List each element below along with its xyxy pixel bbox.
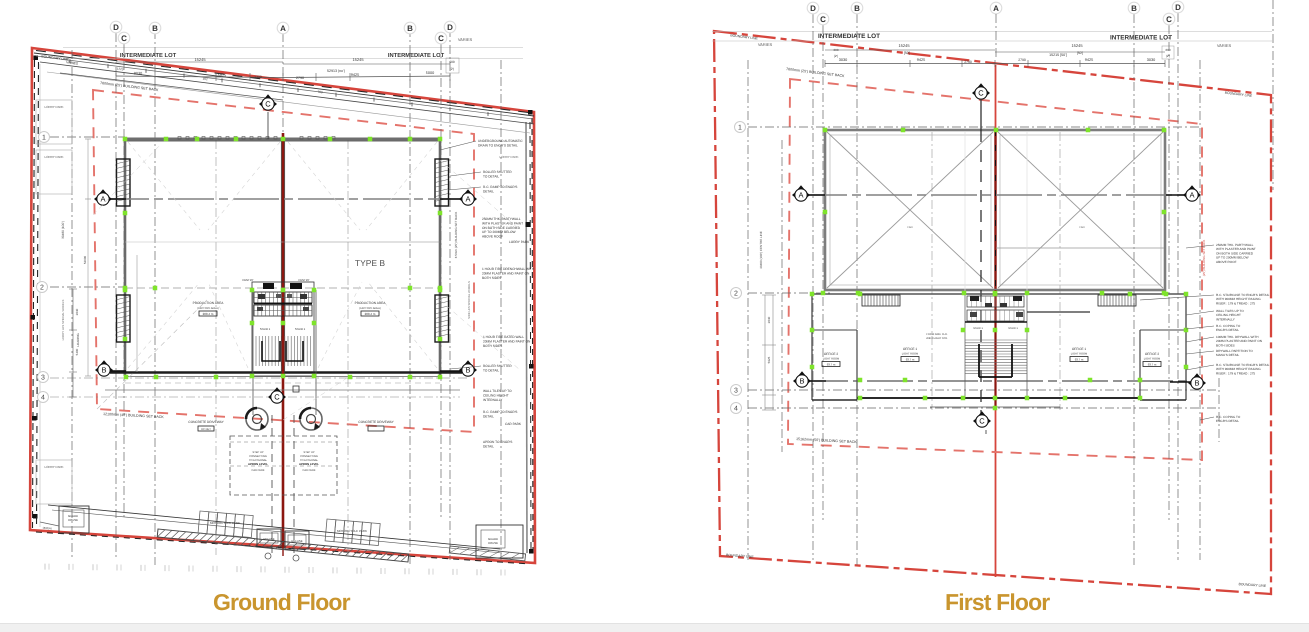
svg-text:20MM PLASTER AND PAINT ON: 20MM PLASTER AND PAINT ON: [483, 339, 531, 343]
svg-text:93.7 m: 93.7 m: [827, 363, 836, 367]
svg-text:INTERMEDIATE LOT: INTERMEDIATE LOT: [1110, 35, 1172, 42]
svg-text:UP TO 200MM BELOW: UP TO 200MM BELOW: [482, 230, 515, 234]
svg-text:LORRY LES SPECIAL WHEELS: LORRY LES SPECIAL WHEELS: [61, 300, 65, 341]
svg-text:93.7 m: 93.7 m: [906, 358, 915, 362]
svg-text:R.C. RAMP TO ENGR'S: R.C. RAMP TO ENGR'S: [483, 410, 517, 414]
svg-text:UNDERGROUND AUTOMATIC: UNDERGROUND AUTOMATIC: [478, 139, 523, 143]
svg-text:TO DETAIL: TO DETAIL: [483, 368, 499, 372]
svg-text:A: A: [1189, 191, 1194, 200]
svg-text:2: 2: [734, 291, 738, 298]
svg-text:5825: 5825: [218, 74, 226, 78]
svg-text:D: D: [113, 23, 119, 32]
svg-text:DETAIL: DETAIL: [483, 414, 494, 418]
svg-text:ROLLER SHUTTER: ROLLER SHUTTER: [483, 364, 512, 368]
svg-text:3: 3: [734, 388, 738, 395]
svg-text:INTERMEDIATE LOT: INTERMEDIATE LOT: [120, 52, 177, 59]
svg-text:9425: 9425: [917, 58, 925, 62]
svg-text:BOTH SIDES: BOTH SIDES: [482, 276, 501, 280]
svg-text:LORRY PARK: LORRY PARK: [44, 105, 63, 109]
svg-text:30480 (100'): 30480 (100'): [61, 221, 65, 239]
svg-text:ENGR'S DETAIL: ENGR'S DETAIL: [1216, 328, 1239, 332]
svg-text:(FACTORY AREA): (FACTORY AREA): [359, 307, 381, 310]
svg-text:B: B: [152, 24, 158, 33]
svg-text:52913 (ne'): 52913 (ne'): [327, 69, 345, 73]
svg-text:93.7 m: 93.7 m: [1148, 363, 1157, 367]
svg-text:600: 600: [1165, 48, 1170, 52]
svg-text:LIGHT ROOM: LIGHT ROOM: [902, 353, 918, 356]
svg-text:A: A: [280, 24, 286, 33]
svg-text:(25') BUILDING SET BACK: (25') BUILDING SET BACK: [1202, 240, 1206, 277]
svg-text:A: A: [993, 4, 999, 13]
svg-text:RISER : 178 & TREAD : 275: RISER : 178 & TREAD : 275: [1216, 301, 1255, 305]
svg-text:93.7 m: 93.7 m: [1075, 358, 1084, 362]
svg-text:1 HOUR FIRE DRENCHWALL WITH: 1 HOUR FIRE DRENCHWALL WITH: [482, 267, 535, 271]
svg-text:PANTRY: PANTRY: [242, 278, 253, 282]
svg-text:A: A: [465, 195, 470, 204]
svg-text:RC DET: RC DET: [201, 428, 211, 431]
svg-text:2790: 2790: [296, 76, 304, 80]
svg-text:LOADING: LOADING: [76, 333, 80, 347]
svg-text:(FACTORY AREA): (FACTORY AREA): [197, 307, 219, 310]
svg-text:TO DETAIL: TO DETAIL: [483, 174, 499, 178]
svg-text:9425: 9425: [351, 73, 359, 77]
svg-text:1223: 1223: [117, 67, 124, 72]
svg-text:BOTH SIDES: BOTH SIDES: [483, 344, 502, 348]
svg-text:9030: 9030: [134, 72, 142, 76]
svg-text:HOUSE: HOUSE: [68, 518, 78, 522]
svg-text:MANU'S DETAIL: MANU'S DETAIL: [1216, 353, 1240, 357]
svg-text:REFUSE: REFUSE: [291, 539, 302, 543]
svg-text:200.4 m: 200.4 m: [203, 312, 214, 316]
svg-text:15245: 15245: [898, 43, 910, 48]
svg-text:BOUNDARY LINE: BOUNDARY LINE: [1238, 582, 1267, 588]
svg-text:C: C: [265, 100, 271, 109]
svg-text:CONNECTING: CONNECTING: [300, 455, 317, 458]
svg-text:12100mm (40') BUILDING SET BAC: 12100mm (40') BUILDING SET BACK: [103, 412, 164, 419]
svg-text:4: 4: [41, 395, 45, 402]
svg-text:STAIR 1: STAIR 1: [1008, 327, 1018, 330]
svg-text:STAIR 1: STAIR 1: [260, 327, 271, 331]
svg-text:(2'): (2'): [450, 67, 455, 71]
svg-text:APRON LEVEL: APRON LEVEL: [299, 462, 319, 466]
svg-text:15245: 15245: [1071, 43, 1083, 48]
svg-text:2840: 2840: [767, 316, 771, 323]
svg-text:STAIR 1: STAIR 1: [295, 327, 306, 331]
svg-text:HOUSE: HOUSE: [488, 541, 498, 545]
svg-text:A: A: [100, 195, 105, 204]
svg-text:INTERNALLY: INTERNALLY: [1216, 317, 1235, 321]
svg-text:2: 2: [40, 285, 44, 292]
svg-text:B: B: [1131, 4, 1137, 13]
svg-text:FAN: FAN: [907, 226, 912, 229]
svg-text:CONNECTING: CONNECTING: [249, 455, 266, 458]
svg-text:RISER : 178 & TREAD : 275: RISER : 178 & TREAD : 275: [1216, 371, 1255, 375]
svg-text:ENGR'S DETAIL: ENGR'S DETAIL: [1216, 419, 1239, 423]
svg-text:2790: 2790: [1018, 58, 1026, 62]
svg-text:VARIES: VARIES: [758, 42, 773, 47]
svg-text:B: B: [1194, 379, 1199, 388]
svg-text:C: C: [1166, 15, 1172, 24]
svg-text:2ND FLIGHT STR.: 2ND FLIGHT STR.: [926, 337, 948, 340]
svg-text:FROM GRD. FLR.: FROM GRD. FLR.: [926, 333, 947, 336]
svg-text:STEP UP: STEP UP: [252, 451, 263, 454]
svg-text:(2'): (2'): [1166, 54, 1170, 58]
svg-text:OFFICE 2: OFFICE 2: [824, 352, 839, 356]
svg-text:DRAIN TO ENGR'S DETAIL: DRAIN TO ENGR'S DETAIL: [478, 143, 518, 147]
svg-text:C: C: [121, 34, 127, 43]
svg-text:LORRY PARK: LORRY PARK: [44, 465, 63, 469]
svg-text:C: C: [438, 34, 444, 43]
svg-text:C: C: [820, 15, 826, 24]
svg-text:PRODUCTION AREA: PRODUCTION AREA: [355, 301, 387, 305]
svg-text:1 HOUR FIRE RATED WALL: 1 HOUR FIRE RATED WALL: [483, 335, 524, 339]
svg-text:WITH PLASTER AND PAINT: WITH PLASTER AND PAINT: [482, 221, 523, 225]
svg-text:VARIES: VARIES: [458, 37, 473, 42]
svg-text:15245: 15245: [352, 57, 364, 62]
svg-text:B: B: [799, 377, 804, 386]
svg-text:1: 1: [42, 135, 46, 142]
svg-text:APRON TO ENGR'S: APRON TO ENGR'S: [483, 440, 512, 444]
svg-text:INTERMEDIATE LOT: INTERMEDIATE LOT: [388, 52, 445, 59]
svg-text:4: 4: [734, 406, 738, 413]
svg-text:A: A: [798, 191, 803, 200]
svg-text:STEP UP: STEP UP: [303, 451, 314, 454]
svg-text:5400: 5400: [75, 348, 79, 355]
svg-text:2790: 2790: [964, 60, 972, 64]
svg-text:ROLLER SHUTTER: ROLLER SHUTTER: [483, 170, 512, 174]
svg-text:20MM PLASTER AND PAINT ON: 20MM PLASTER AND PAINT ON: [482, 271, 530, 275]
svg-text:CONCRETE DRIVEWAY: CONCRETE DRIVEWAY: [358, 420, 394, 424]
svg-text:TYPE B: TYPE B: [355, 258, 386, 268]
svg-text:DETAIL: DETAIL: [483, 444, 494, 448]
svg-text:5925: 5925: [767, 356, 771, 363]
svg-text:15245: 15245: [194, 57, 206, 62]
svg-text:CONCRETE DRIVEWAY: CONCRETE DRIVEWAY: [188, 420, 224, 424]
svg-text:3: 3: [41, 375, 45, 382]
svg-text:[50']: [50']: [1077, 51, 1083, 55]
svg-text:ABOVE ROOF: ABOVE ROOF: [1216, 260, 1237, 264]
svg-text:C: C: [979, 417, 985, 426]
svg-text:VARIES: VARIES: [1217, 43, 1232, 48]
svg-text:MOTORCYCLE PARK: MOTORCYCLE PARK: [337, 529, 367, 533]
svg-text:WALL TILES UP TO: WALL TILES UP TO: [483, 389, 512, 393]
svg-text:BOUNDARY LINE: BOUNDARY LINE: [730, 33, 759, 40]
svg-text:7600mm (25') BUILDING SET BACK: 7600mm (25') BUILDING SET BACK: [786, 67, 845, 78]
svg-text:15215 [50']: 15215 [50']: [1049, 53, 1067, 57]
svg-text:OFFICE 2: OFFICE 2: [1145, 352, 1160, 356]
svg-text:C: C: [978, 89, 984, 98]
svg-text:LIGHT ROOM: LIGHT ROOM: [823, 358, 839, 361]
svg-text:C: C: [274, 393, 280, 402]
svg-text:INTERMEDIATE LOT: INTERMEDIATE LOT: [818, 33, 880, 40]
svg-text:5000: 5000: [426, 71, 434, 75]
svg-text:PANTRY: PANTRY: [298, 278, 309, 282]
svg-text:VARIES: VARIES: [66, 60, 79, 66]
svg-text:STAIR 1: STAIR 1: [973, 327, 983, 330]
svg-text:200.4 m: 200.4 m: [365, 312, 376, 316]
svg-text:53000: 53000: [83, 255, 87, 264]
svg-text:[50']: [50']: [904, 51, 910, 55]
svg-text:30480 (100') CENTRE LINE: 30480 (100') CENTRE LINE: [759, 231, 763, 268]
svg-text:D: D: [810, 4, 816, 13]
svg-text:FAN: FAN: [1079, 226, 1084, 229]
svg-text:[2']: [2']: [834, 54, 838, 58]
svg-text:LIGHT ROOM: LIGHT ROOM: [1144, 358, 1160, 361]
svg-text:760: 760: [317, 90, 323, 95]
svg-text:CAR PARK: CAR PARK: [302, 469, 315, 472]
svg-text:SIDE LES SPECIAL WHEELS: SIDE LES SPECIAL WHEELS: [467, 281, 471, 319]
svg-text:ON BOTH SIDE CARRIED: ON BOTH SIDE CARRIED: [482, 226, 521, 230]
svg-text:1390: 1390: [254, 75, 262, 79]
svg-text:2840: 2840: [75, 308, 79, 315]
svg-text:R.C. RAMP TO ENGR'S: R.C. RAMP TO ENGR'S: [483, 185, 517, 189]
svg-text:REFUSE: REFUSE: [263, 537, 274, 541]
svg-text:3030: 3030: [1147, 58, 1155, 62]
svg-text:INTERNALLY: INTERNALLY: [483, 398, 503, 402]
svg-text:152: 152: [202, 77, 208, 82]
svg-text:CAR PARK: CAR PARK: [251, 469, 264, 472]
svg-text:OFFICE 1: OFFICE 1: [903, 347, 918, 351]
svg-text:D: D: [447, 23, 453, 32]
svg-text:LORRY PARK: LORRY PARK: [509, 240, 530, 244]
svg-text:B: B: [854, 4, 860, 13]
svg-text:DETAIL: DETAIL: [483, 189, 494, 193]
svg-text:B: B: [101, 366, 106, 375]
svg-text:PRODUCTION AREA: PRODUCTION AREA: [193, 301, 225, 305]
svg-text:8 5mm (25') BUILDING SET BACK: 8 5mm (25') BUILDING SET BACK: [454, 212, 458, 259]
svg-text:3030: 3030: [839, 58, 847, 62]
svg-text:APRON LEVEL: APRON LEVEL: [248, 462, 268, 466]
svg-text:CEILING HEIGHT: CEILING HEIGHT: [483, 393, 509, 397]
svg-text:LORRY PARK: LORRY PARK: [44, 155, 63, 159]
svg-text:ABOVE ROOF: ABOVE ROOF: [482, 235, 503, 239]
svg-text:D: D: [1175, 3, 1181, 12]
svg-text:15162mm (50') BUILDING SET BAC: 15162mm (50') BUILDING SET BACK: [796, 437, 857, 444]
svg-text:BOTH SIDES: BOTH SIDES: [1216, 343, 1235, 347]
svg-text:1: 1: [738, 125, 742, 132]
svg-text:LORRY PARK: LORRY PARK: [499, 155, 518, 159]
svg-text:LIGHT ROOM: LIGHT ROOM: [1071, 353, 1087, 356]
svg-text:9425: 9425: [1085, 58, 1093, 62]
svg-text:250MM THK. PARTYWALL: 250MM THK. PARTYWALL: [482, 217, 521, 221]
svg-text:CAR PARK: CAR PARK: [505, 422, 522, 426]
svg-text:OFFICE 1: OFFICE 1: [1072, 347, 1087, 351]
svg-text:B: B: [407, 24, 413, 33]
